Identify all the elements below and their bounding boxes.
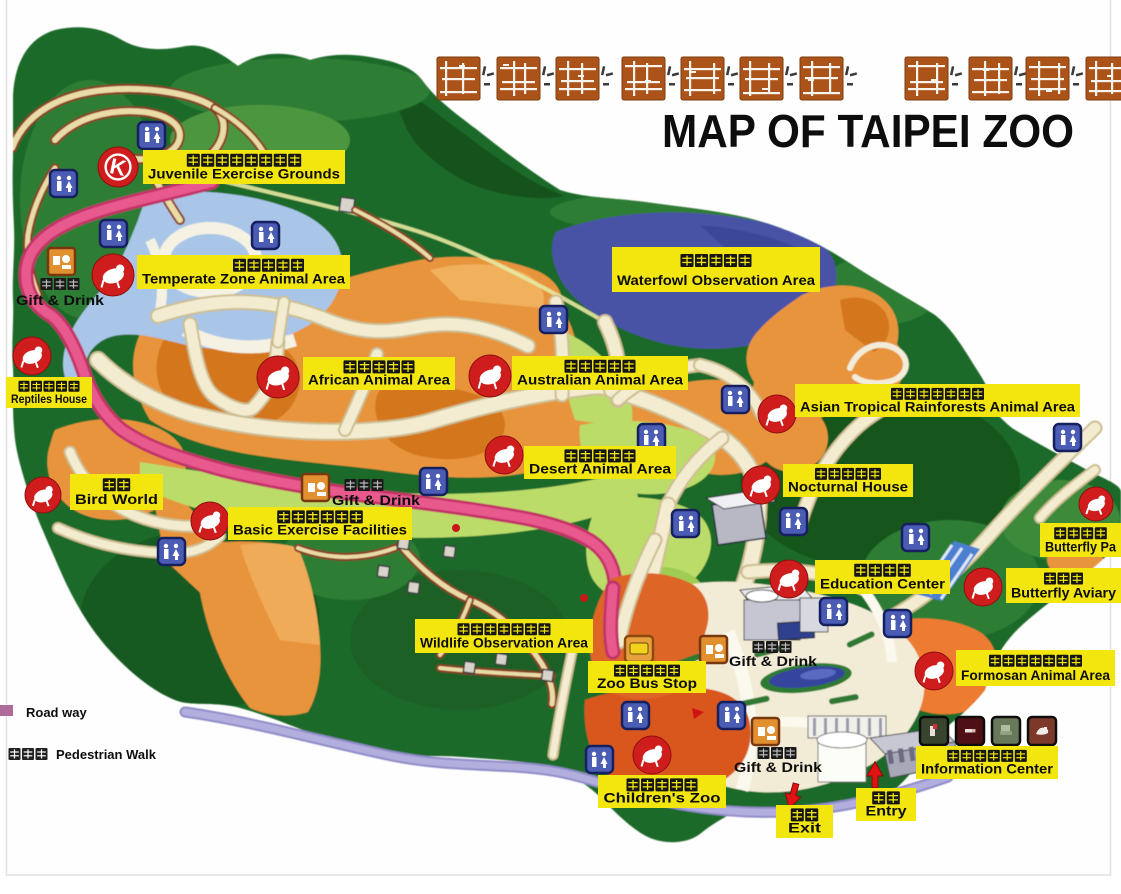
svg-text:MAP OF TAIPEI ZOO: MAP OF TAIPEI ZOO xyxy=(662,105,1074,157)
svg-text:Gift & Drink: Gift & Drink xyxy=(332,493,421,508)
svg-text:Bird World: Bird World xyxy=(75,492,158,507)
svg-text:Education Center: Education Center xyxy=(820,577,946,592)
svg-text:Information Center: Information Center xyxy=(921,762,1054,777)
svg-text:Pedestrian Walk: Pedestrian Walk xyxy=(56,747,157,762)
svg-text:Desert Animal Area: Desert Animal Area xyxy=(529,462,672,477)
svg-text:Butterfly Aviary: Butterfly Aviary xyxy=(1011,585,1117,600)
svg-text:Entry: Entry xyxy=(866,804,908,819)
svg-text:Gift & Drink: Gift & Drink xyxy=(729,654,818,669)
svg-text:Wildlife Observation Area: Wildlife Observation Area xyxy=(420,636,589,651)
svg-text:Temperate Zone Animal Area: Temperate Zone Animal Area xyxy=(142,272,346,287)
svg-text:Waterfowl Observation Area: Waterfowl Observation Area xyxy=(617,273,816,288)
svg-text:Gift & Drink: Gift & Drink xyxy=(734,760,823,775)
svg-text:Butterfly Pa: Butterfly Pa xyxy=(1045,540,1116,555)
svg-text:Children's Zoo: Children's Zoo xyxy=(604,791,721,806)
svg-text:Asian Tropical Rainforests Ani: Asian Tropical Rainforests Animal Area xyxy=(800,400,1076,415)
svg-text:Australian Animal Area: Australian Animal Area xyxy=(517,373,684,388)
svg-text:Exit: Exit xyxy=(788,821,822,836)
svg-text:Formosan Animal Area: Formosan Animal Area xyxy=(961,668,1110,683)
svg-text:Road way: Road way xyxy=(26,705,87,720)
svg-text:African Animal Area: African Animal Area xyxy=(308,373,451,388)
svg-text:Reptiles House: Reptiles House xyxy=(11,394,87,406)
svg-text:Basic Exercise Facilities: Basic Exercise Facilities xyxy=(233,523,407,538)
svg-text:Nocturnal House: Nocturnal House xyxy=(788,480,909,495)
svg-text:Juvenile Exercise Grounds: Juvenile Exercise Grounds xyxy=(148,167,340,182)
svg-text:Zoo Bus Stop: Zoo Bus Stop xyxy=(597,676,697,691)
svg-text:Gift & Drink: Gift & Drink xyxy=(16,293,105,308)
